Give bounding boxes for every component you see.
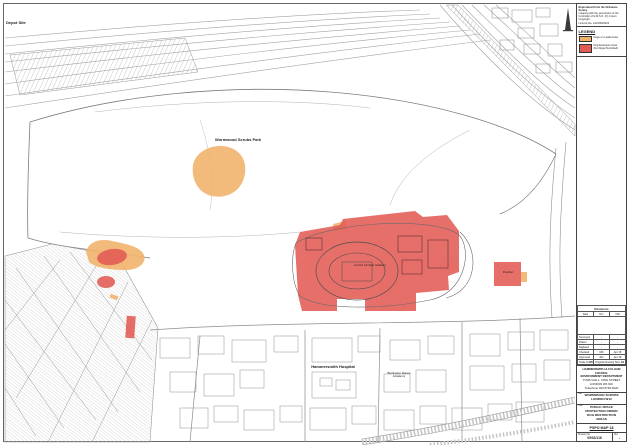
legend-item-dogs-on-lead: Dogs on Leads Area [579,36,625,43]
roads-south [150,316,575,442]
legend-item-dog-exclusion: Dog Exclusion Area (No Dogs Permitted) [579,44,625,53]
buildings-south [160,330,570,430]
drawing-title-panel: Title PUBLIC SPACE PROTECTION ORDER DOG … [577,405,626,424]
north-arrow-icon [563,8,573,31]
drawing-number-cell: Drawing No. 05/02/118 [577,433,612,441]
legend-title: LEGEND [579,29,625,34]
legend-item-label-line: (No Dogs Permitted) [594,47,619,50]
map-number: PSPO MAP 18 [577,424,626,433]
title-line: AREAS [579,418,625,422]
title-heading: Title [578,405,582,407]
railway-corridor-northwest [5,10,490,108]
orange-swatch-icon [579,36,592,43]
revision-value: - [614,436,625,440]
red-swatch-icon [579,44,592,53]
site-panel: Site WORMWOOD SCRUBS LONDON W12 [577,393,626,405]
size-value: A3 [621,361,624,364]
housing-estate-southwest [5,244,158,442]
site-line: LONDON W12 [579,398,625,402]
title-block-sidebar: Reproduced from the Ordnance Survey mapp… [576,3,627,442]
drawing-number-value: 05/02/118 [578,436,611,440]
copyright-stamp: Reproduced from the Ordnance Survey mapp… [577,4,626,27]
legend: LEGEND Dogs on Leads Area Dog Exclusion … [577,27,626,57]
legend-item-label: Dog Exclusion Area (No Dogs Permitted) [594,44,619,50]
revisions-table: Revisions Date Drn Chk Surveyed - - Draw… [577,305,626,365]
revision-cell: Rev - [612,433,626,441]
scale-label: Scale [579,361,586,364]
phone-line: Telephone 020 8748 3020 [579,387,625,391]
map-sheet: Depot Site Wormwood Scrubs Park Linford … [0,0,630,445]
railway-southeast [362,397,575,445]
revisions-empty-row [578,317,626,335]
sidebar-spacer [577,57,626,305]
map-canvas [0,0,630,445]
scale-value: 1:1250 [586,361,593,364]
table-row: Scale 1:1250 Original Drawing Size A3 [578,360,626,365]
council-address: HAMMERSMITH & FULHAM COUNCIL ENVIRONMENT… [577,365,626,393]
size-label: Original Drawing Size [595,361,620,364]
scale-cell: Scale 1:1250 [578,360,594,365]
site-heading: Site [578,393,582,395]
size-cell: Original Drawing Size A3 [594,360,626,365]
stamp-line: Licence No. LA100019223 [579,22,625,25]
drawing-number-row: Drawing No. 05/02/118 Rev - [577,433,626,441]
legend-item-label: Dogs on Leads Area [594,36,618,39]
park-boundary [28,89,556,258]
dog-exclusion-areas [96,211,521,338]
